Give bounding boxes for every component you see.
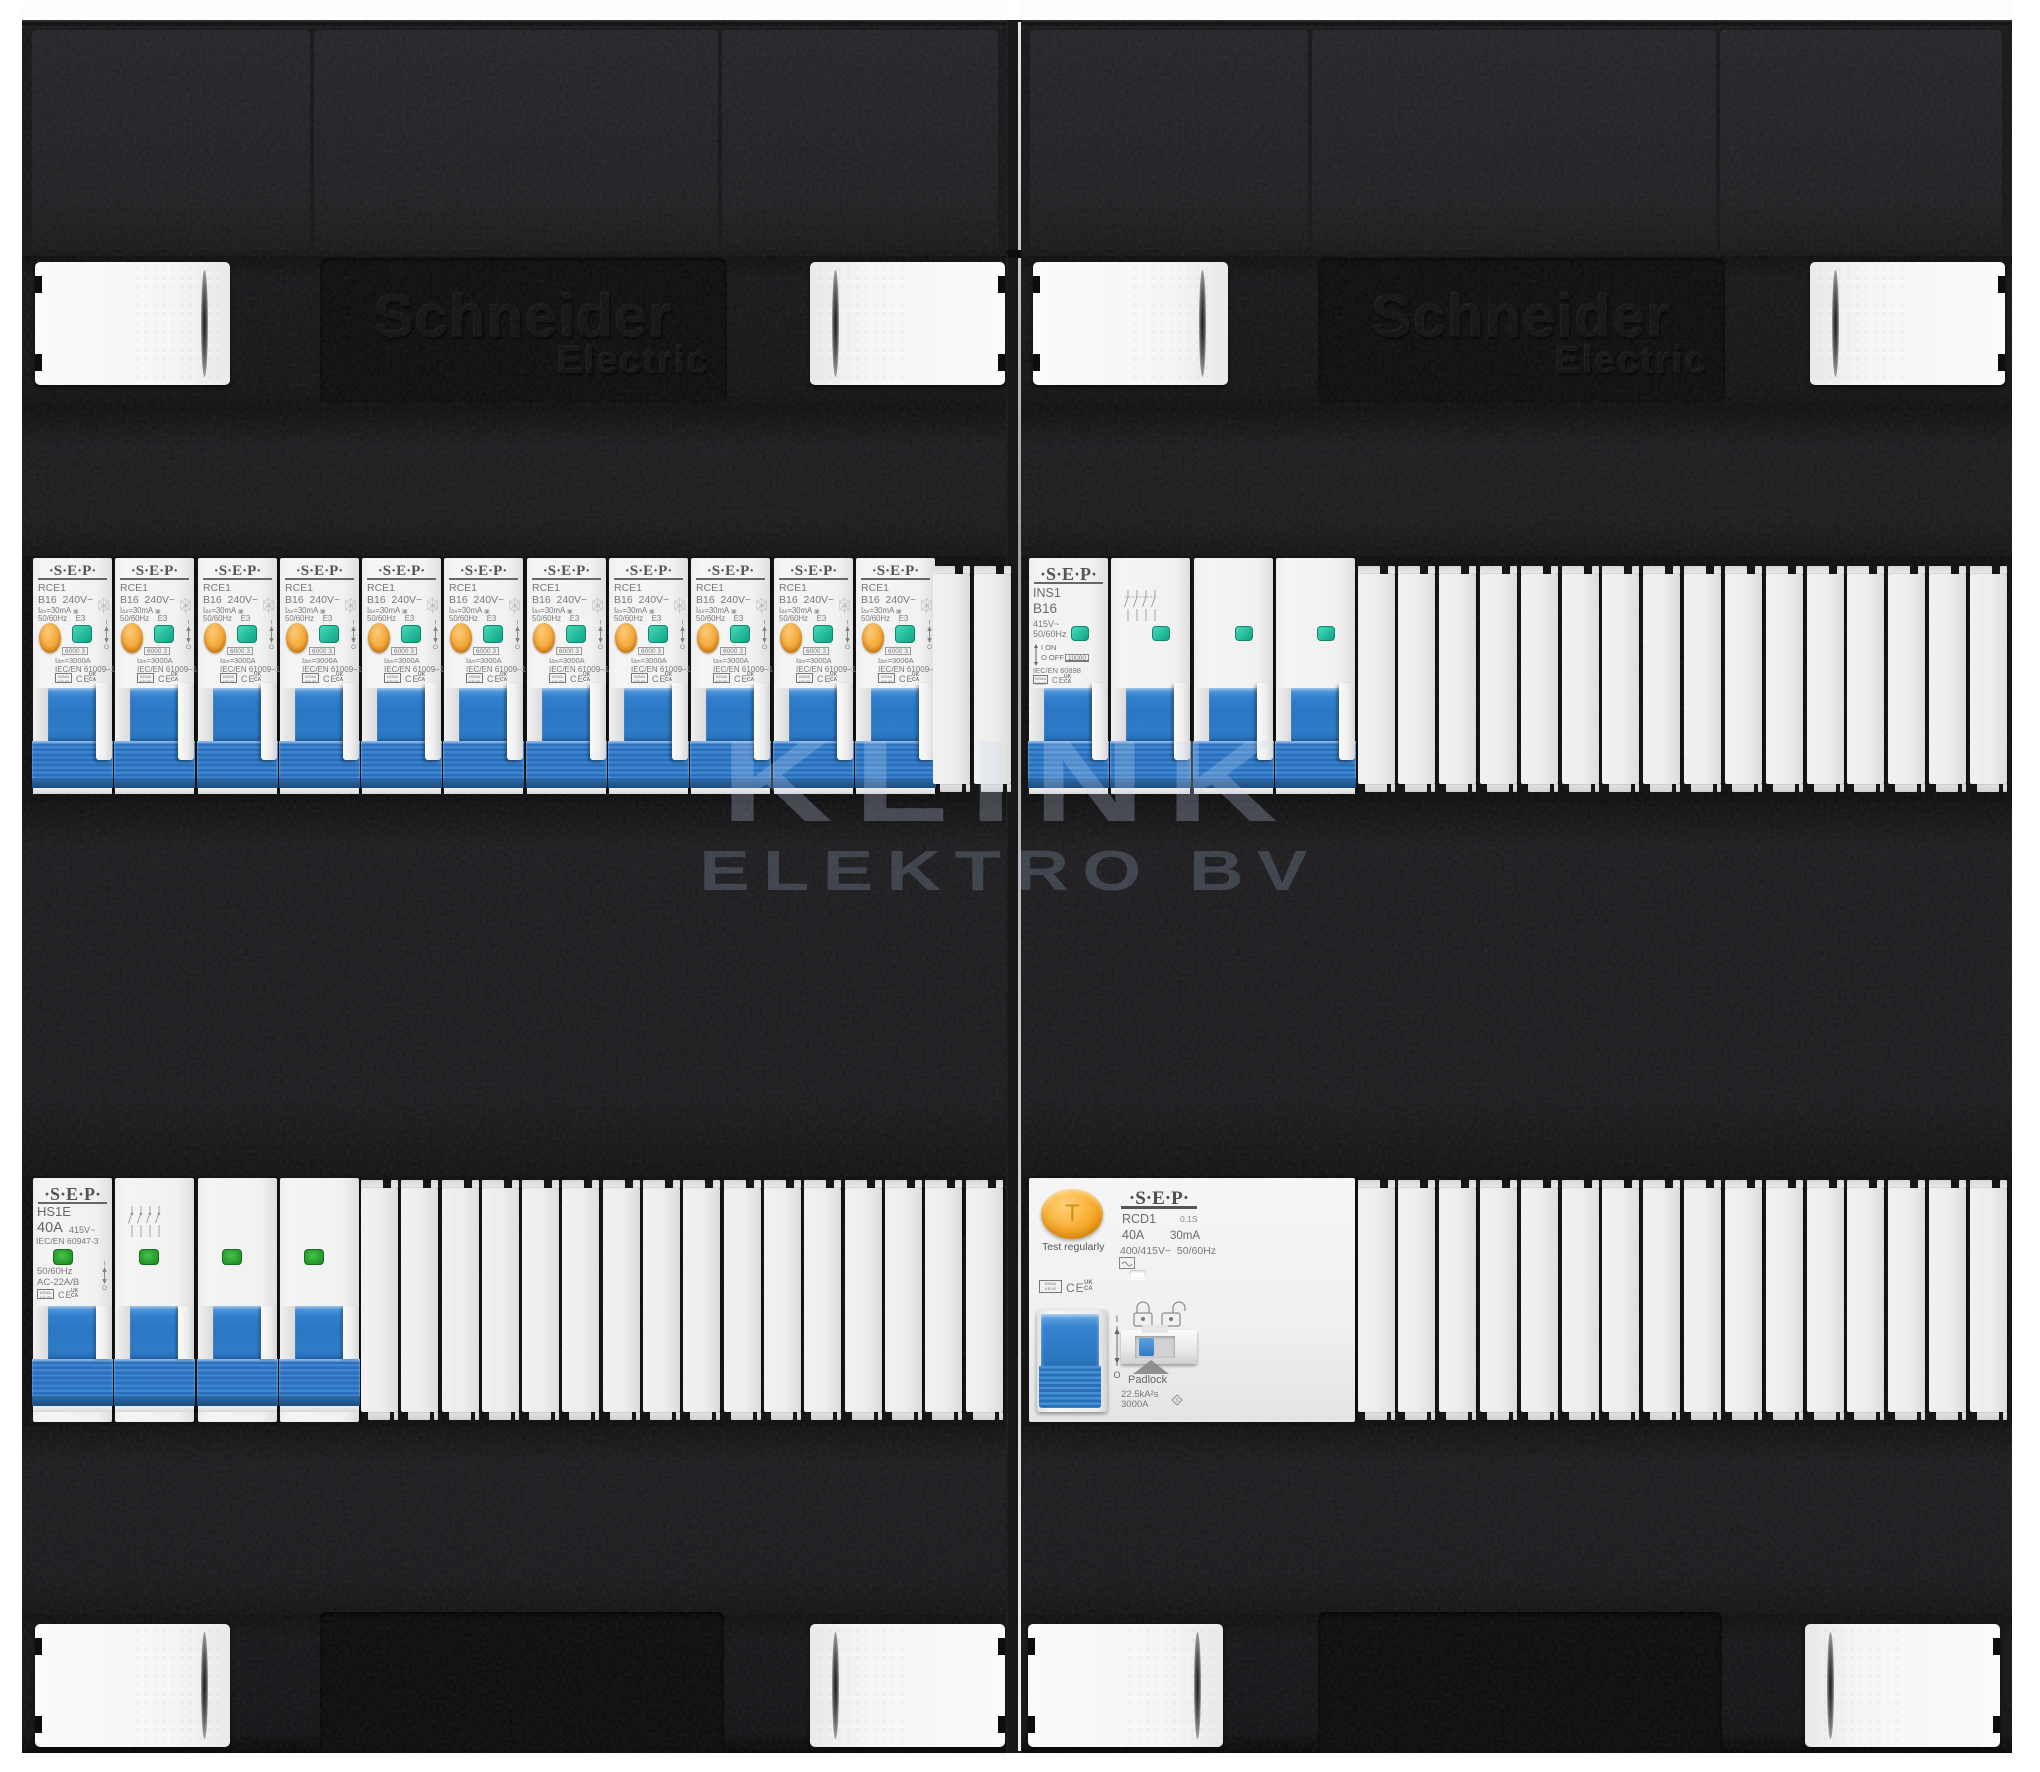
svg-text:-25: -25	[266, 603, 273, 608]
svg-text:O: O	[1113, 1370, 1120, 1380]
svg-text:-25: -25	[430, 603, 437, 608]
svg-text:-25: -25	[348, 603, 355, 608]
svg-text:I: I	[104, 1261, 106, 1268]
svg-text:O: O	[515, 644, 520, 650]
svg-text:-25: -25	[183, 603, 190, 608]
svg-text:I: I	[600, 620, 602, 627]
svg-text:I: I	[435, 620, 437, 627]
svg-text:-25: -25	[759, 603, 766, 608]
svg-text:O: O	[927, 644, 932, 650]
svg-text:O: O	[845, 644, 850, 650]
svg-text:O: O	[104, 644, 109, 650]
svg-text:-25: -25	[512, 603, 519, 608]
svg-text:I: I	[271, 620, 273, 627]
svg-text:I: I	[106, 620, 108, 627]
svg-text:-25: -25	[677, 603, 684, 608]
svg-text:O: O	[102, 1285, 107, 1291]
svg-text:I: I	[764, 620, 766, 627]
svg-text:I: I	[353, 620, 355, 627]
svg-text:I: I	[847, 620, 849, 627]
svg-text:O: O	[351, 644, 356, 650]
svg-text:I: I	[682, 620, 684, 627]
svg-text:-25: -25	[924, 603, 931, 608]
svg-text:I: I	[517, 620, 519, 627]
svg-text:O: O	[433, 644, 438, 650]
svg-text:O: O	[762, 644, 767, 650]
svg-text:I: I	[188, 620, 190, 627]
svg-text:O: O	[680, 644, 685, 650]
svg-text:I: I	[929, 620, 931, 627]
svg-text:-25: -25	[101, 603, 108, 608]
svg-text:-25: -25	[595, 603, 602, 608]
svg-text:O: O	[598, 644, 603, 650]
svg-text:I: I	[1116, 1314, 1119, 1324]
svg-text:O: O	[269, 644, 274, 650]
svg-text:-25: -25	[842, 603, 849, 608]
svg-text:O: O	[186, 644, 191, 650]
